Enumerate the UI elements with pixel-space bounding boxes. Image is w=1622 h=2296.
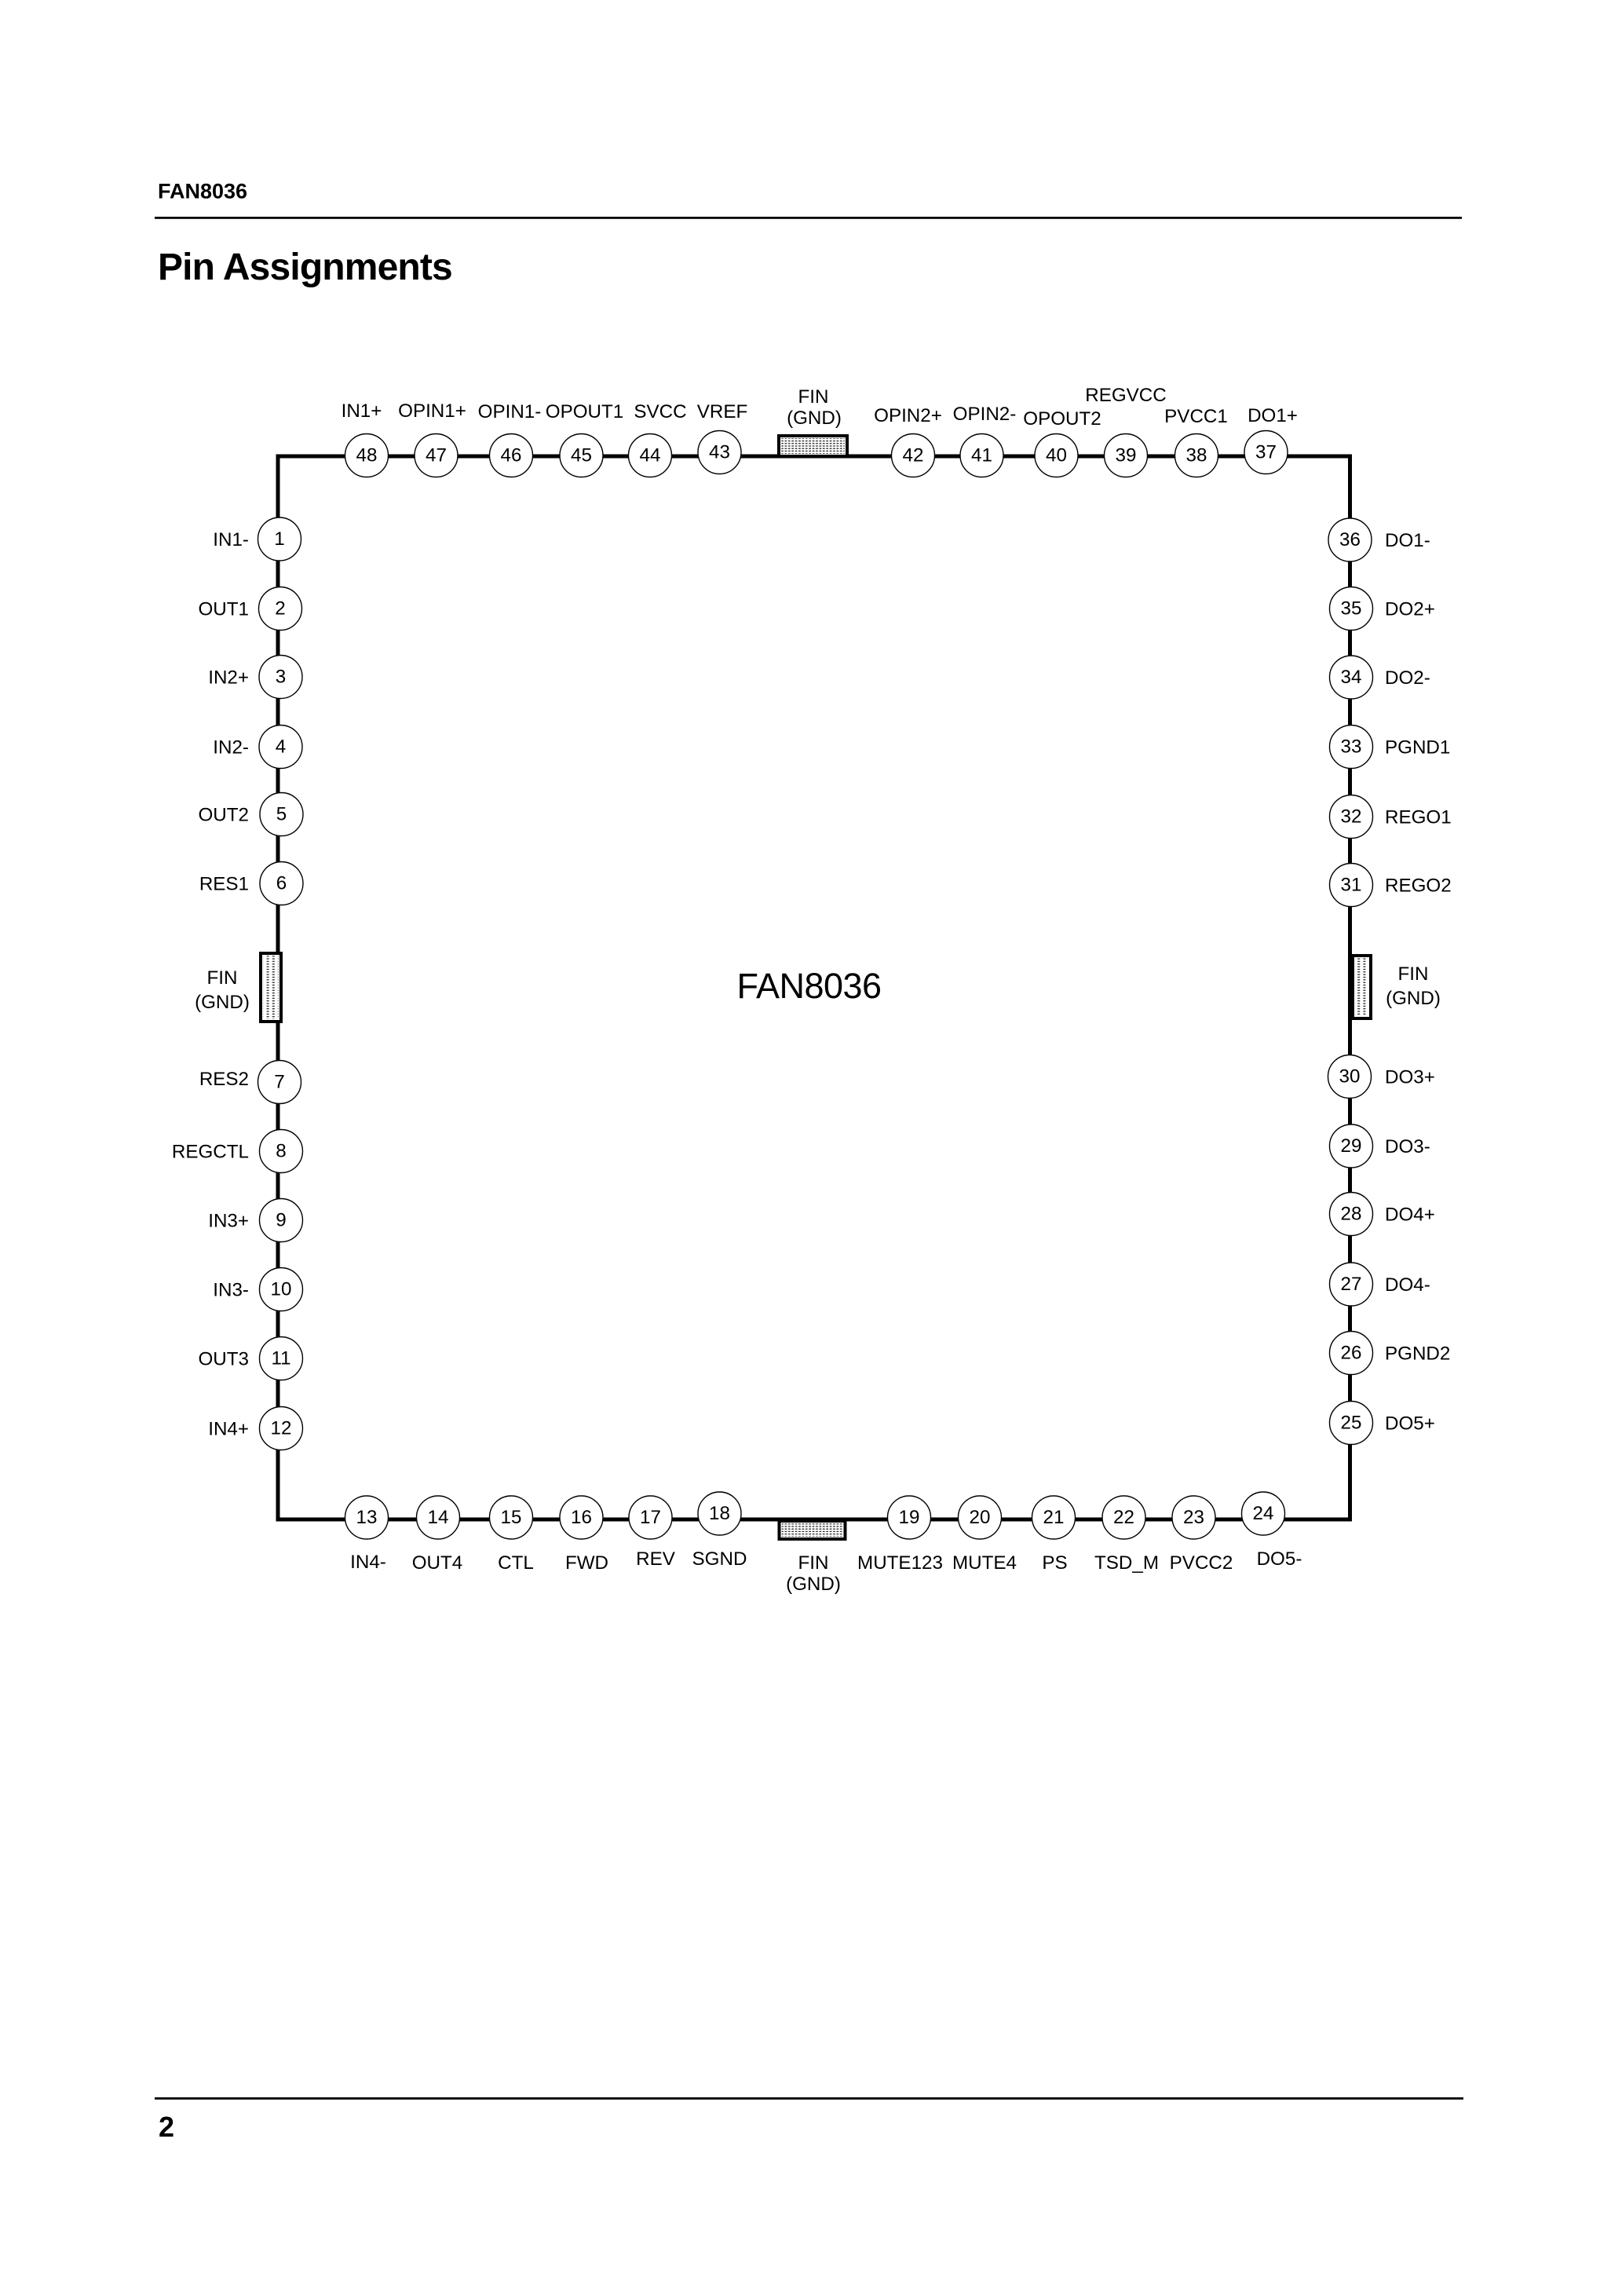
svg-text:33: 33 — [1341, 737, 1362, 758]
svg-text:PVCC2: PVCC2 — [1170, 1552, 1233, 1574]
svg-text:CTL: CTL — [498, 1552, 534, 1574]
svg-text:OPOUT1: OPOUT1 — [546, 401, 623, 422]
svg-text:VREF: VREF — [697, 401, 748, 422]
svg-text:OPIN2-: OPIN2- — [953, 404, 1017, 425]
svg-text:38: 38 — [1186, 445, 1207, 466]
svg-text:44: 44 — [640, 445, 661, 466]
svg-text:40: 40 — [1046, 445, 1067, 466]
svg-text:28: 28 — [1341, 1204, 1362, 1225]
svg-text:23: 23 — [1183, 1507, 1204, 1528]
svg-text:45: 45 — [571, 445, 592, 466]
svg-text:IN3-: IN3- — [213, 1280, 249, 1301]
svg-text:7: 7 — [274, 1072, 284, 1093]
svg-text:5: 5 — [276, 804, 287, 825]
svg-text:DO3+: DO3+ — [1385, 1067, 1435, 1088]
svg-text:IN2-: IN2- — [213, 737, 249, 759]
svg-text:PS: PS — [1042, 1552, 1067, 1574]
svg-text:IN4+: IN4+ — [208, 1419, 249, 1440]
svg-text:30: 30 — [1339, 1066, 1361, 1088]
svg-text:FIN: FIN — [1398, 963, 1429, 985]
svg-text:21: 21 — [1043, 1507, 1065, 1528]
svg-text:13: 13 — [356, 1507, 378, 1528]
svg-text:46: 46 — [501, 445, 522, 466]
svg-text:PGND1: PGND1 — [1385, 737, 1450, 759]
svg-text:32: 32 — [1341, 806, 1362, 828]
svg-text:IN1-: IN1- — [213, 529, 249, 550]
svg-text:42: 42 — [903, 445, 924, 466]
svg-text:14: 14 — [428, 1507, 449, 1528]
svg-text:10: 10 — [271, 1279, 292, 1300]
svg-text:OPIN2+: OPIN2+ — [874, 405, 942, 426]
svg-text:FWD: FWD — [565, 1552, 608, 1574]
svg-text:26: 26 — [1341, 1343, 1362, 1364]
svg-text:SVCC: SVCC — [634, 401, 686, 422]
svg-text:43: 43 — [709, 442, 730, 463]
svg-text:19: 19 — [899, 1507, 920, 1528]
svg-text:6: 6 — [276, 873, 287, 894]
svg-text:DO5+: DO5+ — [1385, 1413, 1435, 1435]
svg-text:17: 17 — [640, 1507, 661, 1528]
svg-text:TSD_M: TSD_M — [1094, 1552, 1159, 1574]
svg-text:18: 18 — [709, 1503, 730, 1524]
svg-text:OUT4: OUT4 — [412, 1552, 463, 1574]
svg-text:DO3-: DO3- — [1385, 1136, 1430, 1157]
svg-text:2: 2 — [159, 2111, 174, 2143]
svg-text:DO4-: DO4- — [1385, 1274, 1430, 1296]
svg-text:20: 20 — [970, 1507, 991, 1528]
svg-text:IN3+: IN3+ — [208, 1211, 249, 1232]
svg-text:PVCC1: PVCC1 — [1164, 406, 1228, 427]
svg-text:SGND: SGND — [692, 1548, 747, 1570]
svg-text:OUT1: OUT1 — [198, 599, 249, 620]
svg-text:DO4+: DO4+ — [1385, 1205, 1435, 1226]
svg-text:REGVCC: REGVCC — [1085, 385, 1166, 406]
svg-text:DO2+: DO2+ — [1385, 599, 1435, 620]
svg-text:29: 29 — [1341, 1135, 1362, 1157]
svg-text:IN4-: IN4- — [350, 1552, 386, 1573]
svg-text:FAN8036: FAN8036 — [158, 180, 247, 203]
svg-text:OPIN1-: OPIN1- — [478, 401, 542, 422]
svg-text:REGO2: REGO2 — [1385, 876, 1452, 897]
svg-text:36: 36 — [1339, 529, 1361, 550]
svg-text:DO1-: DO1- — [1385, 530, 1430, 551]
svg-text:24: 24 — [1253, 1503, 1274, 1524]
svg-text:(GND): (GND) — [787, 408, 842, 429]
svg-text:Pin Assignments: Pin Assignments — [158, 247, 452, 288]
svg-text:RES2: RES2 — [199, 1069, 249, 1090]
svg-text:RES1: RES1 — [199, 874, 249, 895]
svg-text:REV: REV — [636, 1548, 676, 1570]
svg-text:(GND): (GND) — [786, 1574, 841, 1595]
svg-text:8: 8 — [276, 1141, 286, 1162]
svg-text:FIN: FIN — [207, 967, 238, 989]
svg-text:35: 35 — [1341, 598, 1362, 620]
svg-text:MUTE4: MUTE4 — [952, 1552, 1017, 1574]
svg-text:FIN: FIN — [798, 386, 829, 408]
svg-text:25: 25 — [1341, 1413, 1362, 1434]
svg-text:31: 31 — [1341, 875, 1362, 896]
svg-text:2: 2 — [275, 598, 285, 620]
svg-text:IN2+: IN2+ — [208, 667, 249, 689]
svg-text:DO5-: DO5- — [1257, 1548, 1302, 1570]
svg-text:REGCTL: REGCTL — [172, 1142, 249, 1163]
svg-text:47: 47 — [426, 445, 447, 466]
svg-text:REGO1: REGO1 — [1385, 807, 1452, 828]
svg-text:41: 41 — [971, 445, 992, 466]
svg-text:DO2-: DO2- — [1385, 667, 1430, 689]
svg-text:11: 11 — [271, 1348, 290, 1369]
svg-text:OPIN1+: OPIN1+ — [398, 400, 466, 422]
svg-text:IN1+: IN1+ — [342, 400, 382, 422]
svg-text:PGND2: PGND2 — [1385, 1344, 1450, 1365]
svg-text:22: 22 — [1113, 1507, 1134, 1528]
svg-text:3: 3 — [276, 667, 286, 688]
svg-text:OUT2: OUT2 — [198, 805, 249, 826]
svg-text:1: 1 — [274, 528, 284, 550]
svg-text:DO1+: DO1+ — [1248, 405, 1298, 426]
svg-text:39: 39 — [1116, 445, 1137, 466]
svg-text:(GND): (GND) — [1386, 988, 1441, 1009]
svg-text:16: 16 — [571, 1507, 592, 1528]
svg-text:FIN: FIN — [798, 1552, 829, 1574]
svg-text:37: 37 — [1255, 442, 1277, 463]
svg-text:4: 4 — [276, 737, 286, 758]
svg-text:48: 48 — [356, 445, 378, 466]
svg-text:12: 12 — [271, 1418, 292, 1439]
svg-text:MUTE123: MUTE123 — [857, 1552, 943, 1574]
svg-text:15: 15 — [501, 1507, 522, 1528]
svg-text:9: 9 — [276, 1210, 286, 1231]
svg-text:(GND): (GND) — [195, 992, 250, 1013]
svg-text:27: 27 — [1341, 1274, 1362, 1295]
svg-text:FAN8036: FAN8036 — [736, 966, 881, 1006]
svg-text:34: 34 — [1341, 667, 1362, 688]
svg-text:OUT3: OUT3 — [198, 1349, 249, 1370]
svg-text:OPOUT2: OPOUT2 — [1023, 408, 1101, 430]
